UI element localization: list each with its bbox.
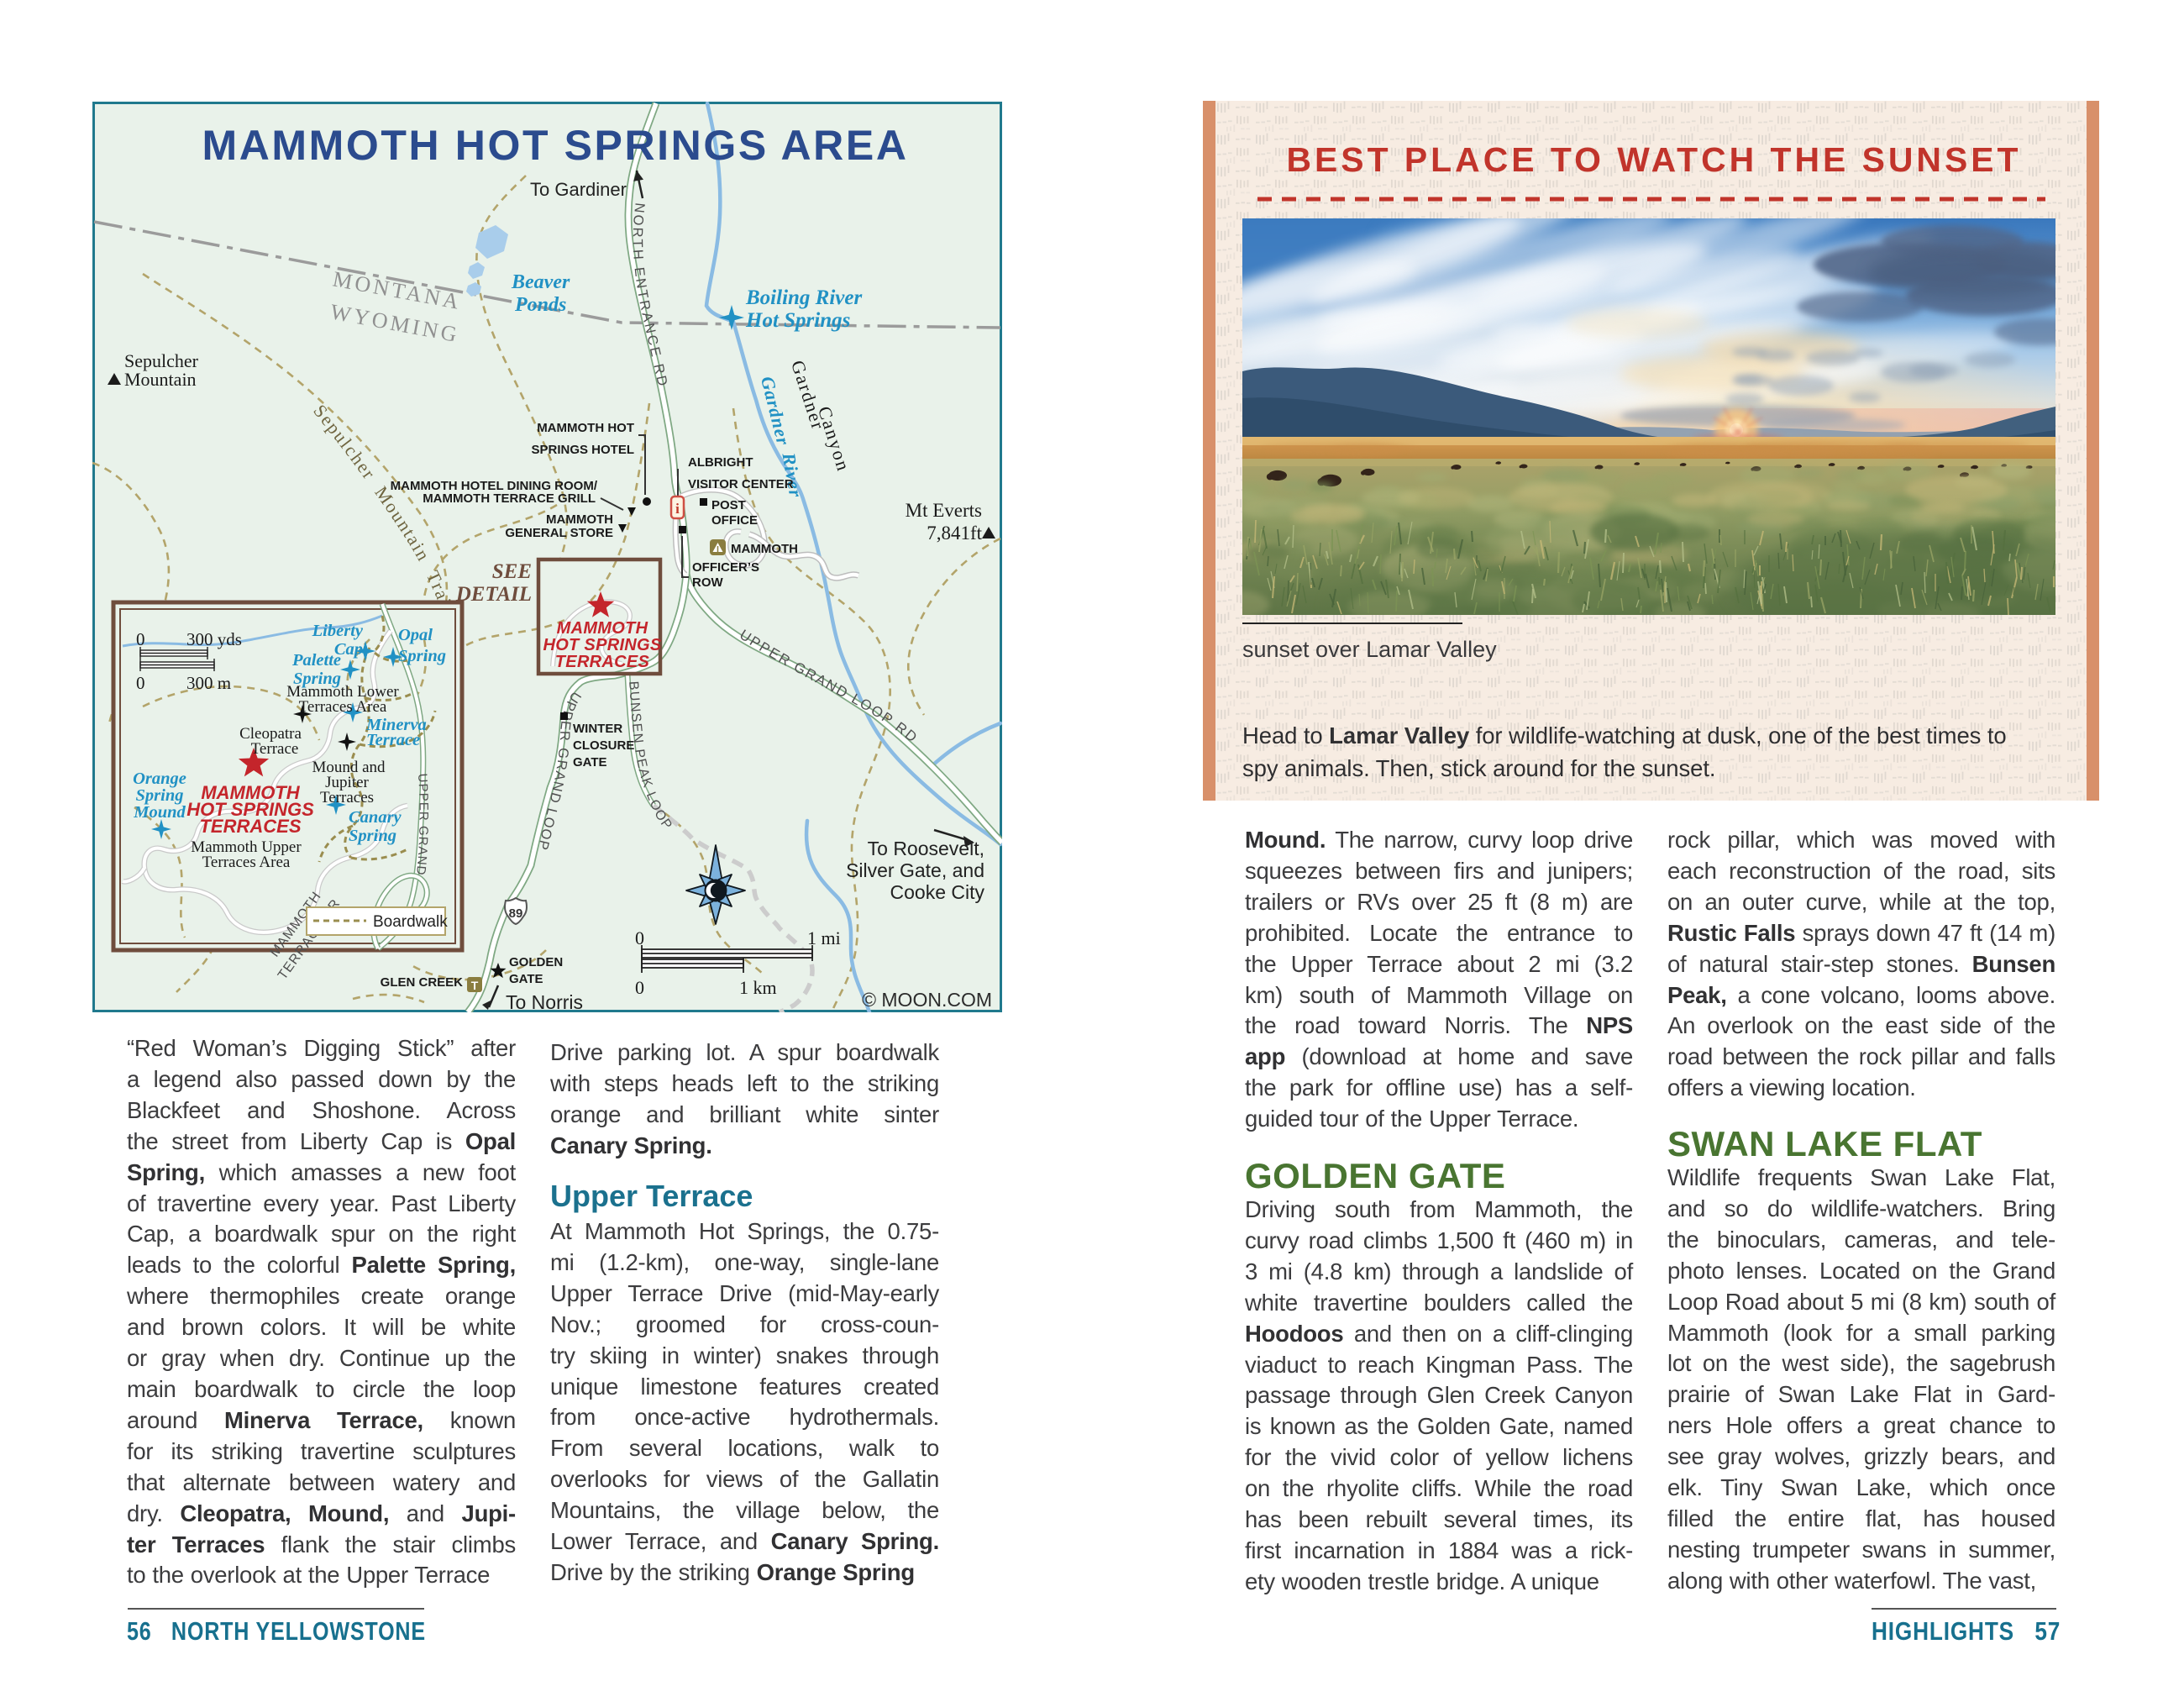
svg-text:Hot Springs: Hot Springs (745, 309, 850, 332)
svg-text:MAMMOTH: MAMMOTH (731, 542, 798, 556)
svg-text:0: 0 (635, 927, 644, 948)
svg-text:Boardwalk: Boardwalk (373, 913, 448, 931)
svg-text:300 m: 300 m (186, 673, 231, 693)
svg-text:POST: POST (711, 498, 746, 512)
svg-text:SPRINGS HOTEL: SPRINGS HOTEL (531, 443, 634, 457)
svg-text:1 km: 1 km (739, 977, 777, 998)
svg-text:Opal: Opal (398, 626, 433, 644)
svg-text:Liberty: Liberty (312, 622, 364, 640)
svg-text:MAMMOTH: MAMMOTH (546, 512, 613, 527)
svg-text:MAMMOTH TERRACE GRILL: MAMMOTH TERRACE GRILL (423, 491, 596, 506)
svg-text:VISITOR CENTER: VISITOR CENTER (688, 477, 794, 491)
svg-text:MAMMOTH HOT: MAMMOTH HOT (537, 421, 634, 435)
svg-text:300 yds: 300 yds (186, 629, 242, 649)
svg-text:0: 0 (136, 673, 145, 693)
svg-text:CLOSURE: CLOSURE (573, 738, 634, 753)
svg-text:Terraces Area: Terraces Area (299, 698, 387, 716)
svg-text:Boiling River: Boiling River (745, 286, 862, 309)
svg-text:Terraces Area: Terraces Area (202, 854, 291, 871)
svg-text:Silver Gate, and: Silver Gate, and (846, 859, 984, 881)
svg-text:Mountain: Mountain (124, 369, 197, 390)
svg-text:TERRACES: TERRACES (199, 816, 301, 837)
svg-text:Spring: Spring (349, 827, 396, 845)
svg-text:TERRACES: TERRACES (555, 653, 650, 671)
svg-text:Cooke City: Cooke City (890, 881, 985, 903)
svg-text:Terrace: Terrace (366, 731, 420, 749)
svg-text:GOLDEN: GOLDEN (509, 955, 563, 969)
svg-text:i: i (675, 501, 680, 517)
svg-text:ROW: ROW (692, 575, 724, 590)
svg-text:Orange: Orange (133, 770, 186, 788)
svg-text:BEST PLACE TO WATCH THE SUNSET: BEST PLACE TO WATCH THE SUNSET (1287, 140, 2022, 179)
svg-text:Spring: Spring (136, 786, 184, 805)
svg-text:89: 89 (509, 906, 523, 921)
svg-text:GLEN CREEK: GLEN CREEK (381, 975, 464, 990)
svg-text:Ponds: Ponds (514, 294, 566, 316)
svg-text:Palette: Palette (291, 651, 341, 670)
svg-text:WINTER: WINTER (573, 722, 622, 736)
svg-text:To Norris: To Norris (506, 991, 583, 1012)
svg-text:Terrace: Terrace (251, 740, 299, 758)
svg-text:SEE: SEE (492, 560, 532, 583)
svg-text:Beaver: Beaver (511, 271, 570, 293)
svg-text:MAMMOTH HOT SPRINGS AREA: MAMMOTH HOT SPRINGS AREA (202, 122, 908, 169)
svg-text:0: 0 (136, 629, 145, 649)
svg-text:Spring: Spring (398, 647, 446, 665)
svg-text:GENERAL STORE: GENERAL STORE (505, 526, 613, 540)
svg-text:OFFICE: OFFICE (711, 513, 758, 528)
svg-text:Mound: Mound (133, 803, 186, 822)
svg-text:0: 0 (635, 977, 644, 998)
svg-text:Canary: Canary (349, 808, 402, 827)
svg-text:© MOON.COM: © MOON.COM (862, 989, 992, 1011)
svg-text:OFFICER’S: OFFICER’S (692, 560, 759, 575)
svg-text:GATE: GATE (509, 972, 543, 986)
svg-text:Terraces: Terraces (320, 789, 374, 806)
svg-text:MAMMOTH: MAMMOTH (557, 619, 648, 638)
svg-text:ALBRIGHT: ALBRIGHT (688, 455, 753, 470)
svg-text:GATE: GATE (573, 755, 607, 770)
svg-text:HOT SPRINGS: HOT SPRINGS (543, 636, 661, 654)
svg-text:T: T (471, 979, 479, 992)
svg-text:DETAIL: DETAIL (455, 583, 532, 606)
svg-text:7,841ft: 7,841ft (927, 523, 982, 544)
svg-text:To Gardiner: To Gardiner (530, 179, 627, 200)
svg-text:Mt Everts: Mt Everts (906, 500, 982, 521)
